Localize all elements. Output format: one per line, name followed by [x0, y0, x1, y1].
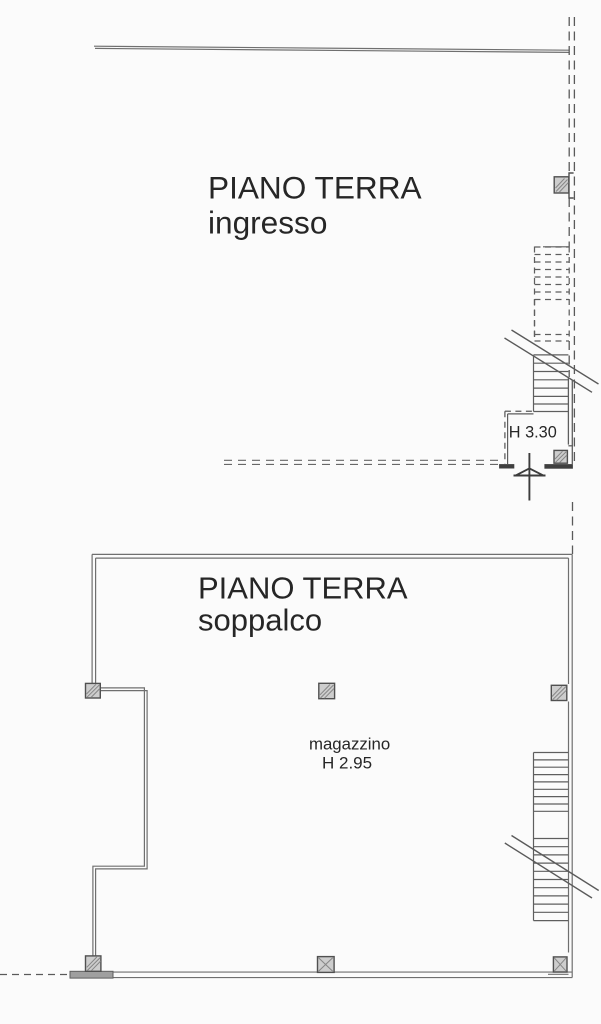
svg-text:magazzino: magazzino [309, 735, 390, 754]
svg-text:soppalco: soppalco [198, 603, 322, 638]
svg-text:PIANO TERRA: PIANO TERRA [208, 170, 423, 206]
svg-text:PIANO TERRA: PIANO TERRA [198, 570, 408, 605]
svg-text:H 2.95: H 2.95 [322, 754, 372, 773]
svg-text:H 3.30: H 3.30 [509, 423, 557, 441]
svg-text:ingresso: ingresso [208, 205, 327, 241]
